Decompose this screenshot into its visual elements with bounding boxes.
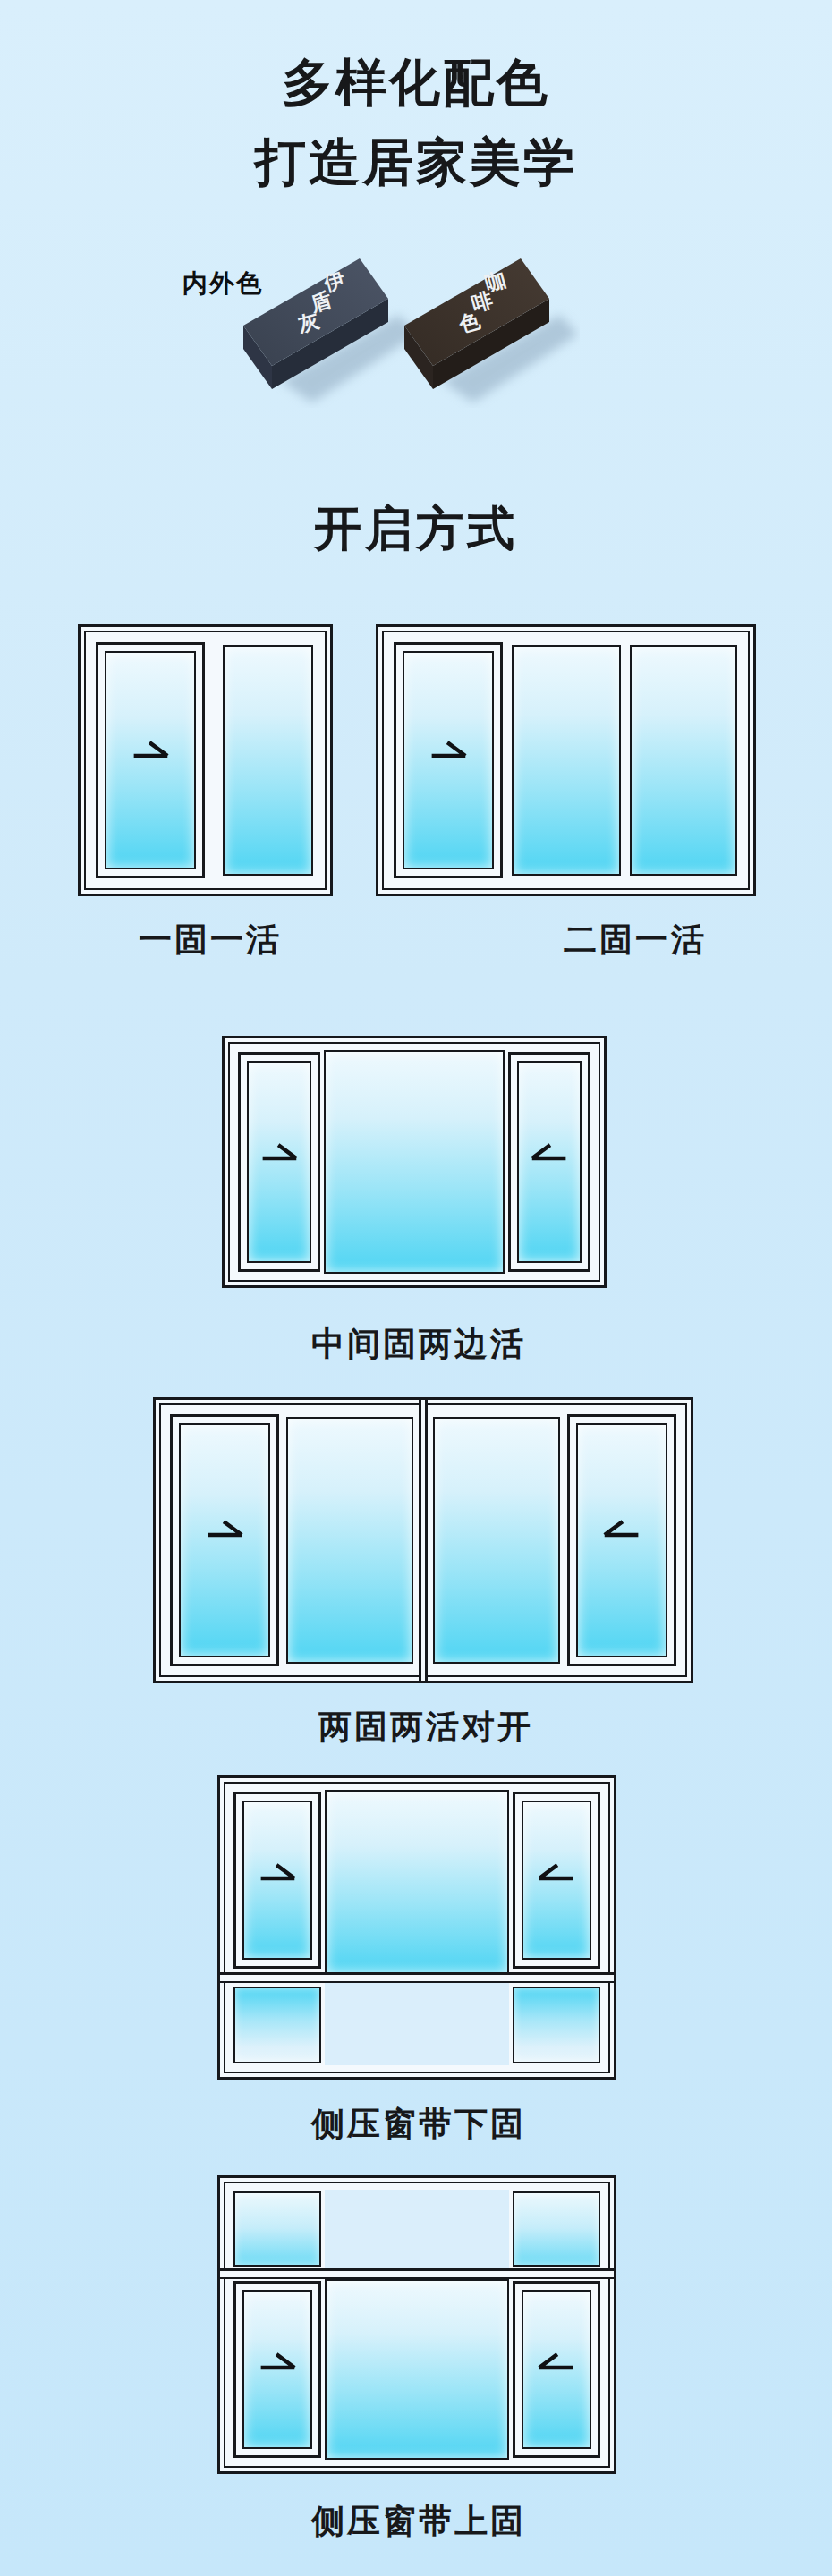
slide-arrow-left-icon — [538, 2350, 575, 2373]
active-sash — [513, 2281, 600, 2458]
window-interior — [232, 1790, 602, 2065]
active-sash — [513, 1792, 600, 1969]
active-sash — [233, 2281, 321, 2458]
window-diagram-two-fixed-two-active — [153, 1397, 693, 1683]
slide-arrow-right-icon — [259, 1860, 296, 1884]
page-title-line1: 多样化配色 — [0, 43, 832, 123]
window-interior — [390, 639, 742, 882]
active-sash — [394, 642, 503, 878]
window-interior — [167, 1411, 679, 1669]
window-type-label: 中间固两边活 — [222, 1322, 616, 1367]
active-sash — [233, 1792, 321, 1969]
window-type-label: 一固一活 — [67, 918, 353, 962]
fixed-glass-pane — [512, 645, 621, 876]
glass-pane — [403, 651, 494, 869]
window-diagram-two-fixed-one-active — [376, 624, 756, 896]
top-filler-panel — [325, 2190, 509, 2268]
window-type-label: 侧压窗带上固 — [222, 2499, 616, 2544]
slide-arrow-left-icon — [531, 1140, 568, 1164]
window-interior — [232, 2190, 602, 2460]
window-type-label: 侧压窗带下固 — [222, 2102, 616, 2147]
bottom-filler-panel — [325, 1983, 509, 2065]
active-sash — [96, 642, 205, 878]
slide-arrow-left-icon — [538, 1860, 575, 1884]
glass-pane — [242, 1801, 312, 1960]
fixed-glass-pane — [433, 1417, 560, 1664]
page-title: 多样化配色 打造居家美学 — [0, 43, 832, 202]
window-type-label: 二固一活 — [492, 918, 778, 962]
fixed-glass-pane — [630, 645, 737, 876]
section-heading: 开启方式 — [0, 497, 832, 562]
fixed-glass-pane — [286, 1417, 413, 1664]
active-sash — [508, 1052, 590, 1272]
center-mullion — [419, 1400, 428, 1681]
bottom-fixed-glass-pane — [233, 1987, 321, 2063]
fixed-glass-pane — [325, 1790, 509, 1974]
fixed-glass-pane — [324, 1050, 505, 1274]
slide-arrow-right-icon — [132, 738, 169, 761]
slide-arrow-right-icon — [260, 1140, 298, 1164]
top-fixed-glass-pane — [513, 2191, 600, 2267]
slide-arrow-right-icon — [206, 1517, 243, 1540]
glass-pane — [179, 1423, 270, 1657]
window-diagram-center-fixed-sides-active — [222, 1036, 607, 1288]
window-diagram-side-press-bottom-fixed — [217, 1775, 616, 2080]
window-diagram-side-press-top-fixed — [217, 2175, 616, 2474]
active-sash — [170, 1414, 279, 1666]
fixed-glass-pane — [325, 2279, 509, 2460]
window-diagram-one-fixed-one-active — [78, 624, 333, 896]
active-sash — [567, 1414, 676, 1666]
window-interior — [92, 639, 318, 882]
page-title-line2: 打造居家美学 — [0, 123, 832, 202]
fixed-glass-pane — [223, 645, 313, 876]
glass-pane — [247, 1061, 311, 1263]
active-sash — [238, 1052, 320, 1272]
bottom-fixed-glass-pane — [513, 1987, 600, 2063]
slide-arrow-right-icon — [259, 2350, 296, 2373]
glass-pane — [522, 2290, 591, 2449]
glass-pane — [576, 1423, 667, 1657]
glass-pane — [105, 651, 196, 869]
glass-pane — [517, 1061, 582, 1263]
slide-arrow-right-icon — [429, 738, 467, 761]
window-interior — [236, 1050, 592, 1274]
glass-pane — [242, 2290, 312, 2449]
window-type-label: 两固两活对开 — [229, 1705, 623, 1750]
color-swatch-coffee-block: 咖 啡 色 — [388, 249, 580, 408]
glass-pane — [522, 1801, 591, 1960]
slide-arrow-left-icon — [603, 1517, 641, 1540]
top-fixed-glass-pane — [233, 2191, 321, 2267]
horizontal-divider — [220, 2268, 614, 2279]
infographic-page: 多样化配色 打造居家美学 内外色 伊 盾 灰 咖 啡 — [0, 0, 832, 2576]
